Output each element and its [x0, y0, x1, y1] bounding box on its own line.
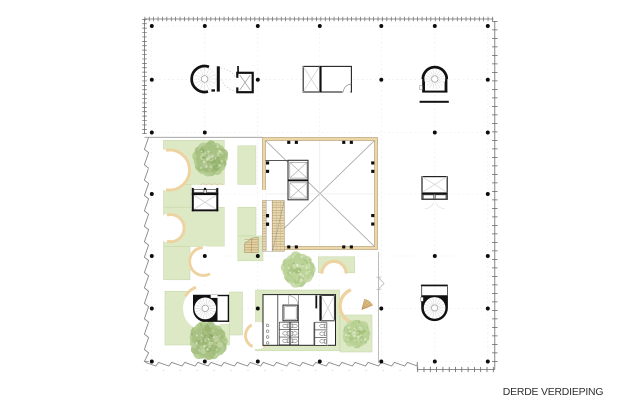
svg-text:DERDE VERDIEPING: DERDE VERDIEPING [503, 387, 604, 398]
